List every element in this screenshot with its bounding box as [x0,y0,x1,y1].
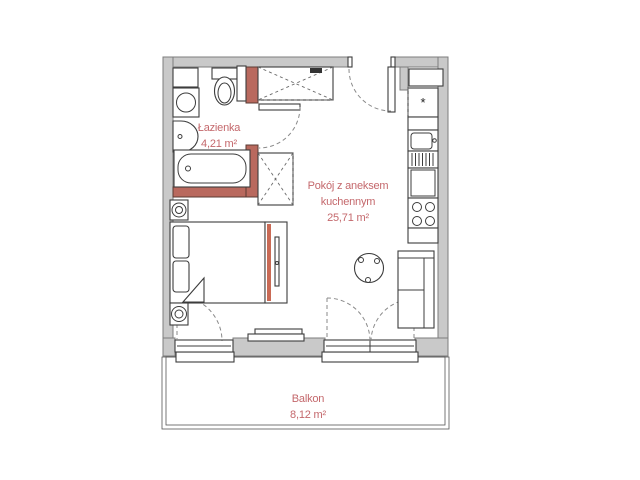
pillow-2 [173,261,189,292]
floor-plan-drawing: * [0,0,640,480]
entrance-jamb-right [391,57,395,67]
washbasin-bowl [173,121,198,152]
red-wall-horizontal [173,187,246,197]
niche-shelf [409,69,443,86]
wall-bottom-a [163,338,175,356]
wardrobe-handle [310,68,322,73]
threshold-right [322,352,418,362]
washbasin [173,121,198,152]
pillow-1 [173,226,189,258]
kitchen-counter-b [408,168,438,198]
living-label-line1: Pokój z aneksem [308,180,389,192]
entrance-jamb-left [348,57,352,67]
bathroom-door-swing [259,107,300,148]
headboard-accent [267,224,271,301]
hall-door-leaf-panel [237,66,246,101]
bed-area [170,200,287,325]
red-wall-top-stub [246,67,258,103]
washing-machine [173,88,199,117]
wall-right [438,57,448,356]
counter-b-outer [408,168,438,198]
double-door-left-swing [327,298,370,341]
entrance-door [348,57,395,112]
kitchen-counter-c [408,228,438,243]
wall-top-left [163,57,352,67]
bathroom-door [259,104,300,148]
bathtub [174,150,250,187]
shower-cabin [258,153,293,205]
sofa [398,251,434,328]
toilet [212,68,237,105]
kitchen-annex: * [408,69,443,243]
toilet-bowl [215,77,235,105]
bathroom-area: 4,21 m² [201,138,237,150]
bedside-plant-bottom [170,303,188,325]
bathroom-label: Łazienka [198,122,242,134]
entrance-door-swing [349,69,391,111]
radiator-body [248,334,304,341]
kitchen-counter-a [408,117,438,130]
stove [408,198,438,228]
drainer-ribs [412,153,433,166]
entrance-door-leaf [388,67,395,112]
dish-drainer [408,151,438,168]
tv-unit [265,222,287,303]
bathroom-door-leaf [259,104,300,110]
threshold-left [176,352,234,362]
fridge: * [408,88,438,117]
kitchen-sink [408,130,438,151]
balcony-label: Balkon [292,393,325,405]
floor-plan: * [0,0,640,480]
radiator-top [255,329,302,334]
fridge-star-icon: * [420,95,425,110]
living-area: 25,71 m² [327,212,369,224]
radiator [248,329,304,341]
bathroom-cabinet [173,68,198,87]
wall-niche-stub [400,67,408,90]
living-label-line2: kuchennym [321,196,375,208]
wall-bottom-c [415,338,448,356]
bedside-plant-top [170,200,188,220]
balcony-area: 8,12 m² [290,409,326,421]
round-table [355,254,384,283]
